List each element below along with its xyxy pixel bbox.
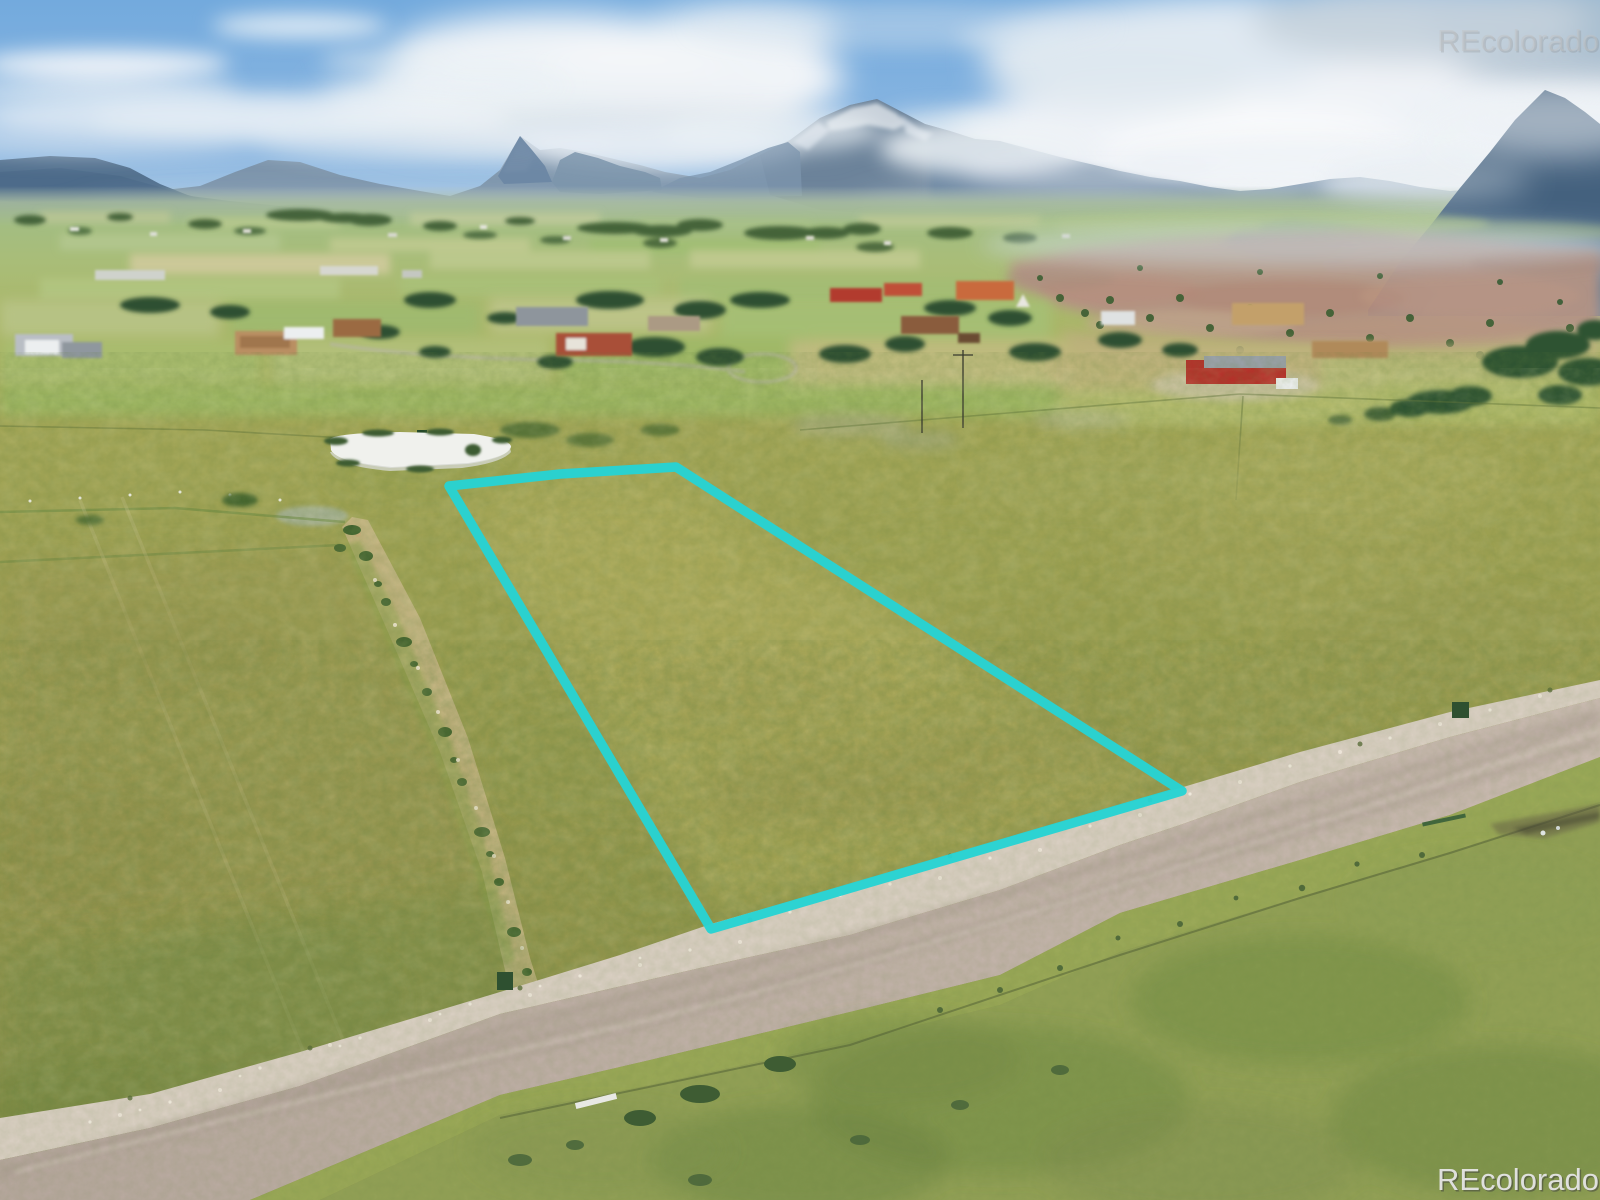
svg-text:REcolorado: REcolorado — [1437, 23, 1599, 58]
svg-text:REcolorado: REcolorado — [1437, 1162, 1599, 1197]
